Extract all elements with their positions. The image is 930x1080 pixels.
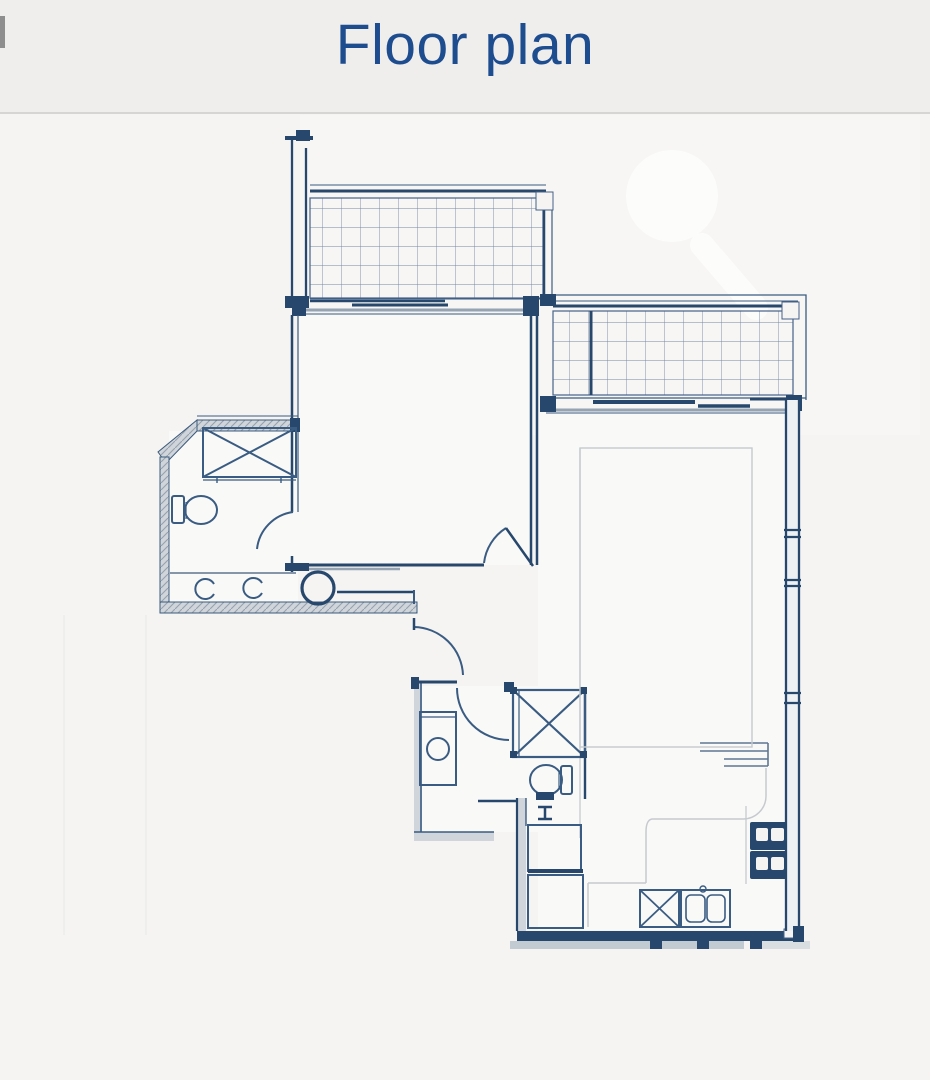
right-window-wall xyxy=(784,400,804,942)
balcony-right-notch xyxy=(782,302,799,319)
ghost-lines-left xyxy=(64,615,146,935)
kitchen-bottom-wall xyxy=(517,931,804,941)
bathroom-small-floor xyxy=(422,686,585,832)
screenshot-root: Floor plan xyxy=(0,0,930,1080)
living-kitchen-floor xyxy=(538,412,786,930)
left-edge-artifact xyxy=(0,16,5,48)
header: Floor plan xyxy=(0,0,930,112)
wall-cap-top xyxy=(296,130,310,141)
hall-door-arc xyxy=(414,627,463,675)
bath-left-wall xyxy=(160,457,169,609)
burner-3 xyxy=(756,857,768,870)
ghost-blob xyxy=(626,150,718,242)
bath-bottom-wall xyxy=(160,602,417,613)
balcony-top xyxy=(310,185,553,298)
balcony-top-grid xyxy=(310,198,543,298)
burner-4 xyxy=(771,857,784,870)
balcony-corner-notch xyxy=(536,192,553,210)
page-title: Floor plan xyxy=(0,0,930,78)
bath-top-wall xyxy=(197,420,298,431)
washer-drum xyxy=(302,572,334,604)
burner-1 xyxy=(756,828,768,841)
bedroom-floor xyxy=(298,315,531,565)
small-bath-bottom-wall xyxy=(414,832,494,841)
balcony-right-grid xyxy=(553,311,793,395)
burner-2 xyxy=(771,828,784,841)
floor-plan-drawing xyxy=(0,110,930,1080)
kitchen-left-wall xyxy=(517,798,526,931)
